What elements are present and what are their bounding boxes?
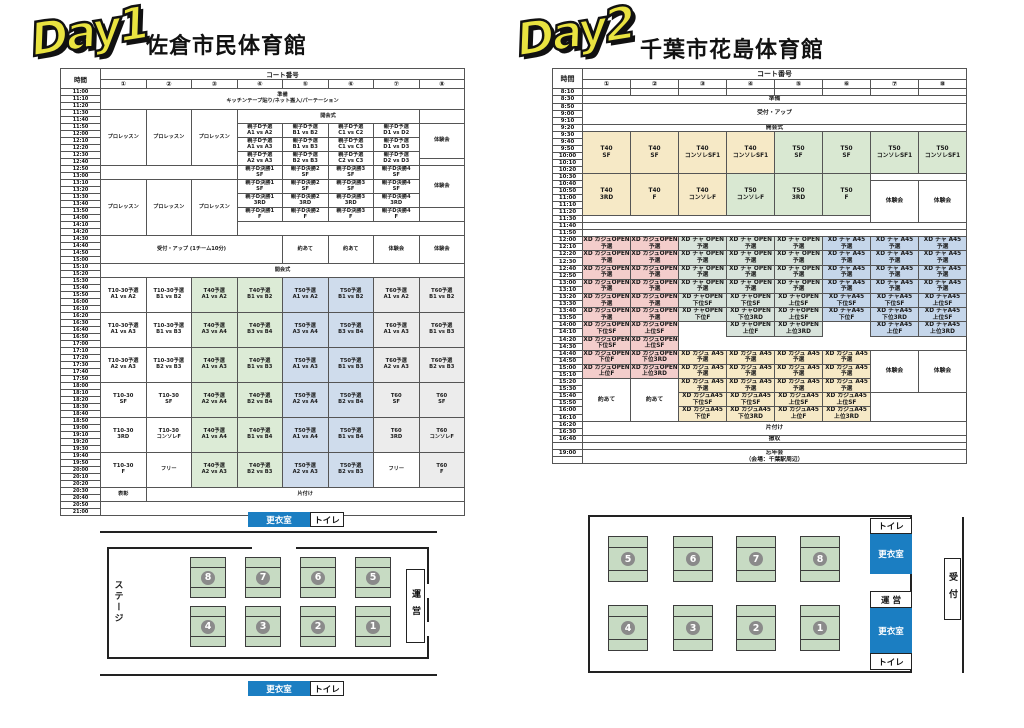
court-center: 7 [246, 568, 280, 588]
court-7: 7 [245, 557, 281, 598]
court-number-badge: 7 [256, 571, 270, 585]
court-band [356, 558, 390, 568]
court-2: 2 [300, 606, 336, 647]
court-center: 8 [191, 568, 225, 588]
court-band [609, 570, 647, 581]
court-band [609, 537, 647, 548]
court-center: 7 [737, 548, 775, 571]
court-band [609, 606, 647, 617]
day1-stage: ステージ [110, 571, 126, 633]
day2-floor-map: 56784321トイレ更衣室運 営更衣室トイレ受付 [512, 0, 1024, 728]
court-center: 1 [801, 617, 839, 640]
court-center: 3 [246, 617, 280, 637]
court-number-badge: 4 [621, 621, 635, 635]
court-center: 4 [609, 617, 647, 640]
court-number-badge: 2 [749, 621, 763, 635]
day1-toilet-bottom: トイレ [310, 681, 344, 696]
court-number-badge: 8 [813, 552, 827, 566]
court-number-badge: 1 [366, 620, 380, 634]
day1-locker-room-top: 更衣室 [248, 512, 310, 527]
day1-door-right-2 [426, 622, 431, 636]
court-number-badge: 6 [311, 571, 325, 585]
court-band [674, 570, 712, 581]
court-band [191, 607, 225, 617]
day2-page: Day2 千葉市花島体育館 時間コート番号①②③④⑤⑥⑦⑧8:108:30準備8… [512, 0, 1024, 728]
court-8: 8 [800, 536, 840, 582]
court-band [674, 606, 712, 617]
court-5: 5 [355, 557, 391, 598]
court-band [301, 636, 335, 646]
court-band [191, 587, 225, 597]
court-1: 1 [800, 605, 840, 651]
day1-door-top [252, 545, 296, 550]
court-center: 8 [801, 548, 839, 571]
court-center: 5 [609, 548, 647, 571]
court-center: 3 [674, 617, 712, 640]
court-number-badge: 5 [366, 571, 380, 585]
court-band [801, 570, 839, 581]
court-3: 3 [245, 606, 281, 647]
day1-door-right-1 [426, 584, 431, 598]
day2-reception: 受付 [944, 558, 961, 620]
court-center: 2 [737, 617, 775, 640]
court-1: 1 [355, 606, 391, 647]
court-number-badge: 7 [749, 552, 763, 566]
court-number-badge: 4 [201, 620, 215, 634]
court-3: 3 [673, 605, 713, 651]
court-8: 8 [190, 557, 226, 598]
court-band [191, 636, 225, 646]
court-number-badge: 1 [813, 621, 827, 635]
court-6: 6 [300, 557, 336, 598]
court-band [301, 587, 335, 597]
day1-wall-bottom [100, 674, 437, 676]
court-band [737, 639, 775, 650]
court-number-badge: 3 [256, 620, 270, 634]
day2-wall-right [962, 517, 964, 673]
day1-toilet-top: トイレ [310, 512, 344, 527]
court-band [246, 558, 280, 568]
court-number-badge: 8 [201, 571, 215, 585]
court-band [356, 636, 390, 646]
scanned-schedule-sheet: Day1 佐倉市民体育館 時間コート番号①②③④⑤⑥⑦⑧11:00準備キッチンテ… [0, 0, 1024, 728]
court-number-badge: 2 [311, 620, 325, 634]
court-7: 7 [736, 536, 776, 582]
court-4: 4 [608, 605, 648, 651]
court-band [301, 607, 335, 617]
court-band [191, 558, 225, 568]
day2-toilet-top: トイレ [870, 518, 912, 534]
court-5: 5 [608, 536, 648, 582]
court-band [609, 639, 647, 650]
day2-operations: 運 営 [870, 591, 912, 608]
court-band [801, 606, 839, 617]
court-band [246, 587, 280, 597]
court-center: 6 [301, 568, 335, 588]
court-2: 2 [736, 605, 776, 651]
day2-locker-room-top: 更衣室 [870, 534, 912, 574]
day1-wall-top [100, 531, 437, 533]
court-center: 1 [356, 617, 390, 637]
court-band [356, 587, 390, 597]
court-center: 6 [674, 548, 712, 571]
court-band [301, 558, 335, 568]
day2-toilet-bottom: トイレ [870, 653, 912, 670]
court-6: 6 [673, 536, 713, 582]
day1-venue-title: 佐倉市民体育館 [146, 28, 307, 60]
day2-venue-title: 千葉市花島体育館 [640, 32, 824, 64]
court-band [801, 537, 839, 548]
day1-locker-room-bottom: 更衣室 [248, 681, 310, 696]
day1-page: Day1 佐倉市民体育館 時間コート番号①②③④⑤⑥⑦⑧11:00準備キッチンテ… [0, 0, 512, 728]
court-band [737, 570, 775, 581]
court-band [737, 537, 775, 548]
court-band [674, 537, 712, 548]
day1-floor-map: 更衣室トイレステージ87654321運営更衣室トイレ [0, 0, 512, 728]
day1-operations: 運営 [406, 569, 425, 643]
court-band [674, 639, 712, 650]
court-band [246, 636, 280, 646]
court-center: 4 [191, 617, 225, 637]
court-center: 2 [301, 617, 335, 637]
court-band [356, 607, 390, 617]
court-band [801, 639, 839, 650]
day2-locker-room-bottom: 更衣室 [870, 608, 912, 653]
court-number-badge: 5 [621, 552, 635, 566]
court-number-badge: 3 [686, 621, 700, 635]
court-center: 5 [356, 568, 390, 588]
court-4: 4 [190, 606, 226, 647]
court-band [246, 607, 280, 617]
court-number-badge: 6 [686, 552, 700, 566]
court-band [737, 606, 775, 617]
